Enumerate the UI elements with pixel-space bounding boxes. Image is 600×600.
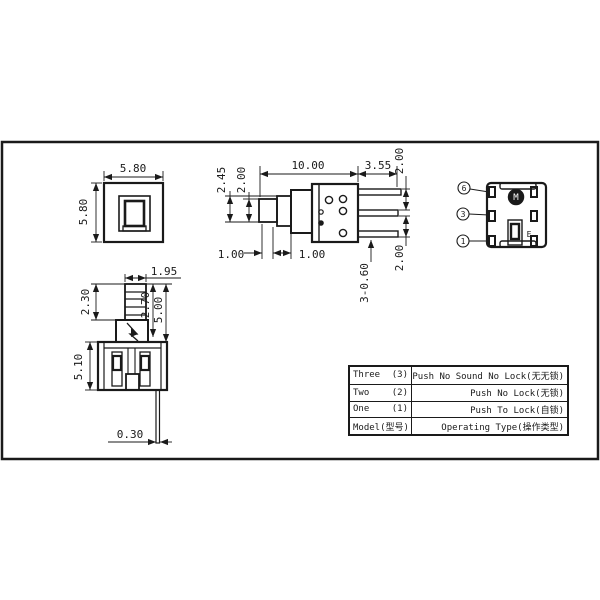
operating-type: Push To Lock(自锁): [470, 403, 564, 416]
front-view: [104, 183, 163, 242]
type-header: Operating Type(操作类型): [441, 420, 564, 433]
pin-callout-1: 1: [461, 237, 466, 246]
dim-front-width: 5.80: [120, 162, 147, 175]
dim-plunger-height: 5.00: [152, 297, 165, 324]
dim-side-pitch-top: 2.00: [393, 148, 406, 175]
lower-front-dim-knurl: [91, 284, 125, 320]
table-row-model: Three (3): [350, 367, 412, 384]
model-code: (2): [392, 388, 408, 398]
side-view-dim-tip-height: [243, 192, 259, 222]
pin-slot: [489, 211, 495, 221]
side-view: [259, 184, 401, 242]
dim-side-length: 10.00: [291, 159, 324, 172]
dim-knurl-height: 2.30: [79, 289, 92, 316]
side-view-dims-bottom: [244, 224, 291, 259]
pin-bottom: [358, 231, 398, 237]
model-header: Model(型号): [353, 420, 409, 433]
technical-drawing: 5.80 5.80 10.00 3.55 2.: [0, 0, 600, 600]
spec-table: Three (3) Push No Sound No Lock(无无锁) Two…: [348, 365, 569, 436]
dim-side-pitch-bottom: 2.00: [393, 245, 406, 272]
pin-middle: [358, 210, 398, 216]
dim-shaft-height: 2.70: [139, 292, 152, 319]
model-code: (1): [392, 404, 408, 414]
table-row-type: Push No Sound No Lock(无无锁): [412, 367, 567, 384]
pin-slot: [489, 187, 495, 197]
lower-front-dim-plunger: [166, 284, 167, 342]
model-name: One: [353, 404, 369, 414]
dim-side-pin-thickness: 3-0.60: [358, 263, 371, 303]
model-name: Two: [353, 388, 369, 398]
table-row-model: One (1): [350, 401, 412, 418]
table-header-model: Model(型号): [350, 417, 412, 434]
drawing-sheet: 5.80 5.80 10.00 3.55 2.: [0, 0, 600, 600]
pin-slot: [531, 211, 537, 221]
pin-slot: [489, 236, 495, 246]
table-header-type: Operating Type(操作类型): [412, 417, 567, 434]
dim-side-step1: 1.00: [218, 248, 245, 261]
dim-top-width: 1.95: [151, 265, 178, 278]
model-name: Three: [353, 370, 380, 380]
dim-side-step-height: 2.45: [215, 167, 228, 194]
lower-front-dim-body: [85, 342, 98, 390]
pin-top: [358, 189, 401, 195]
side-view-dim-pitch-bottom: [398, 216, 410, 246]
dim-side-pin-length: 3.55: [365, 159, 392, 172]
rivet-mark: M: [513, 193, 519, 203]
table-row-type: Push To Lock(自锁): [412, 401, 567, 418]
polarity-mark: E: [527, 230, 532, 239]
bottom-view: [457, 182, 546, 247]
operating-type: Push No Sound No Lock(无无锁): [412, 369, 564, 382]
solder-pin: [156, 390, 160, 443]
model-code: (3): [392, 370, 408, 380]
table-row-type: Push No Lock(无锁): [412, 384, 567, 401]
side-view-dim-step-height: [225, 191, 277, 222]
dim-front-height: 5.80: [77, 199, 90, 226]
pin-callout-6: 6: [462, 184, 467, 193]
dim-side-tip-height: 2.00: [235, 167, 248, 194]
dim-body-height: 5.10: [72, 354, 85, 381]
operating-type: Push No Lock(无锁): [470, 386, 564, 399]
table-row-model: Two (2): [350, 384, 412, 401]
dim-side-step2: 1.00: [299, 248, 326, 261]
pin-callout-3: 3: [461, 210, 466, 219]
front-view-dim-height: [91, 183, 102, 242]
dim-pin-width: 0.30: [117, 428, 144, 441]
